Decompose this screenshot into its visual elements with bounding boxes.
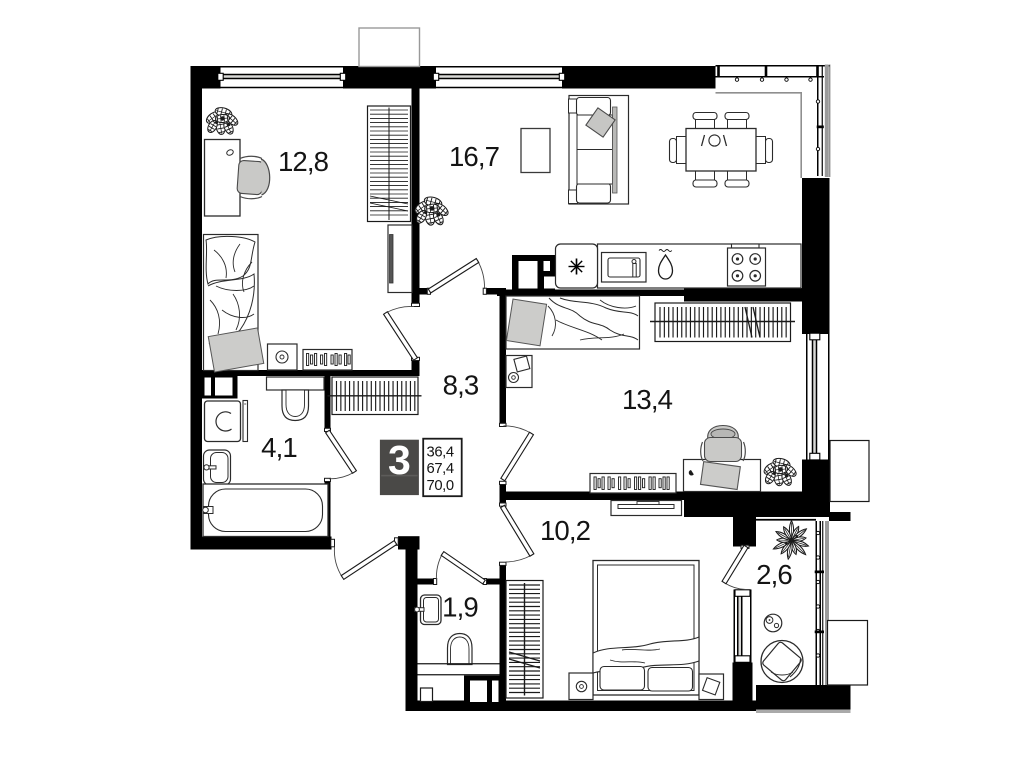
svg-text:1,9: 1,9: [442, 592, 478, 623]
svg-text:8,3: 8,3: [443, 370, 479, 401]
svg-text:12,8: 12,8: [278, 146, 329, 177]
svg-text:10,2: 10,2: [540, 515, 590, 546]
svg-text:16,7: 16,7: [449, 141, 499, 172]
svg-text:36,4: 36,4: [427, 445, 454, 461]
svg-text:3: 3: [388, 437, 411, 483]
svg-text:4,1: 4,1: [261, 432, 297, 463]
svg-text:70,0: 70,0: [427, 478, 454, 494]
svg-text:13,4: 13,4: [622, 384, 673, 415]
svg-text:67,4: 67,4: [427, 461, 454, 477]
svg-text:2,6: 2,6: [756, 559, 792, 590]
